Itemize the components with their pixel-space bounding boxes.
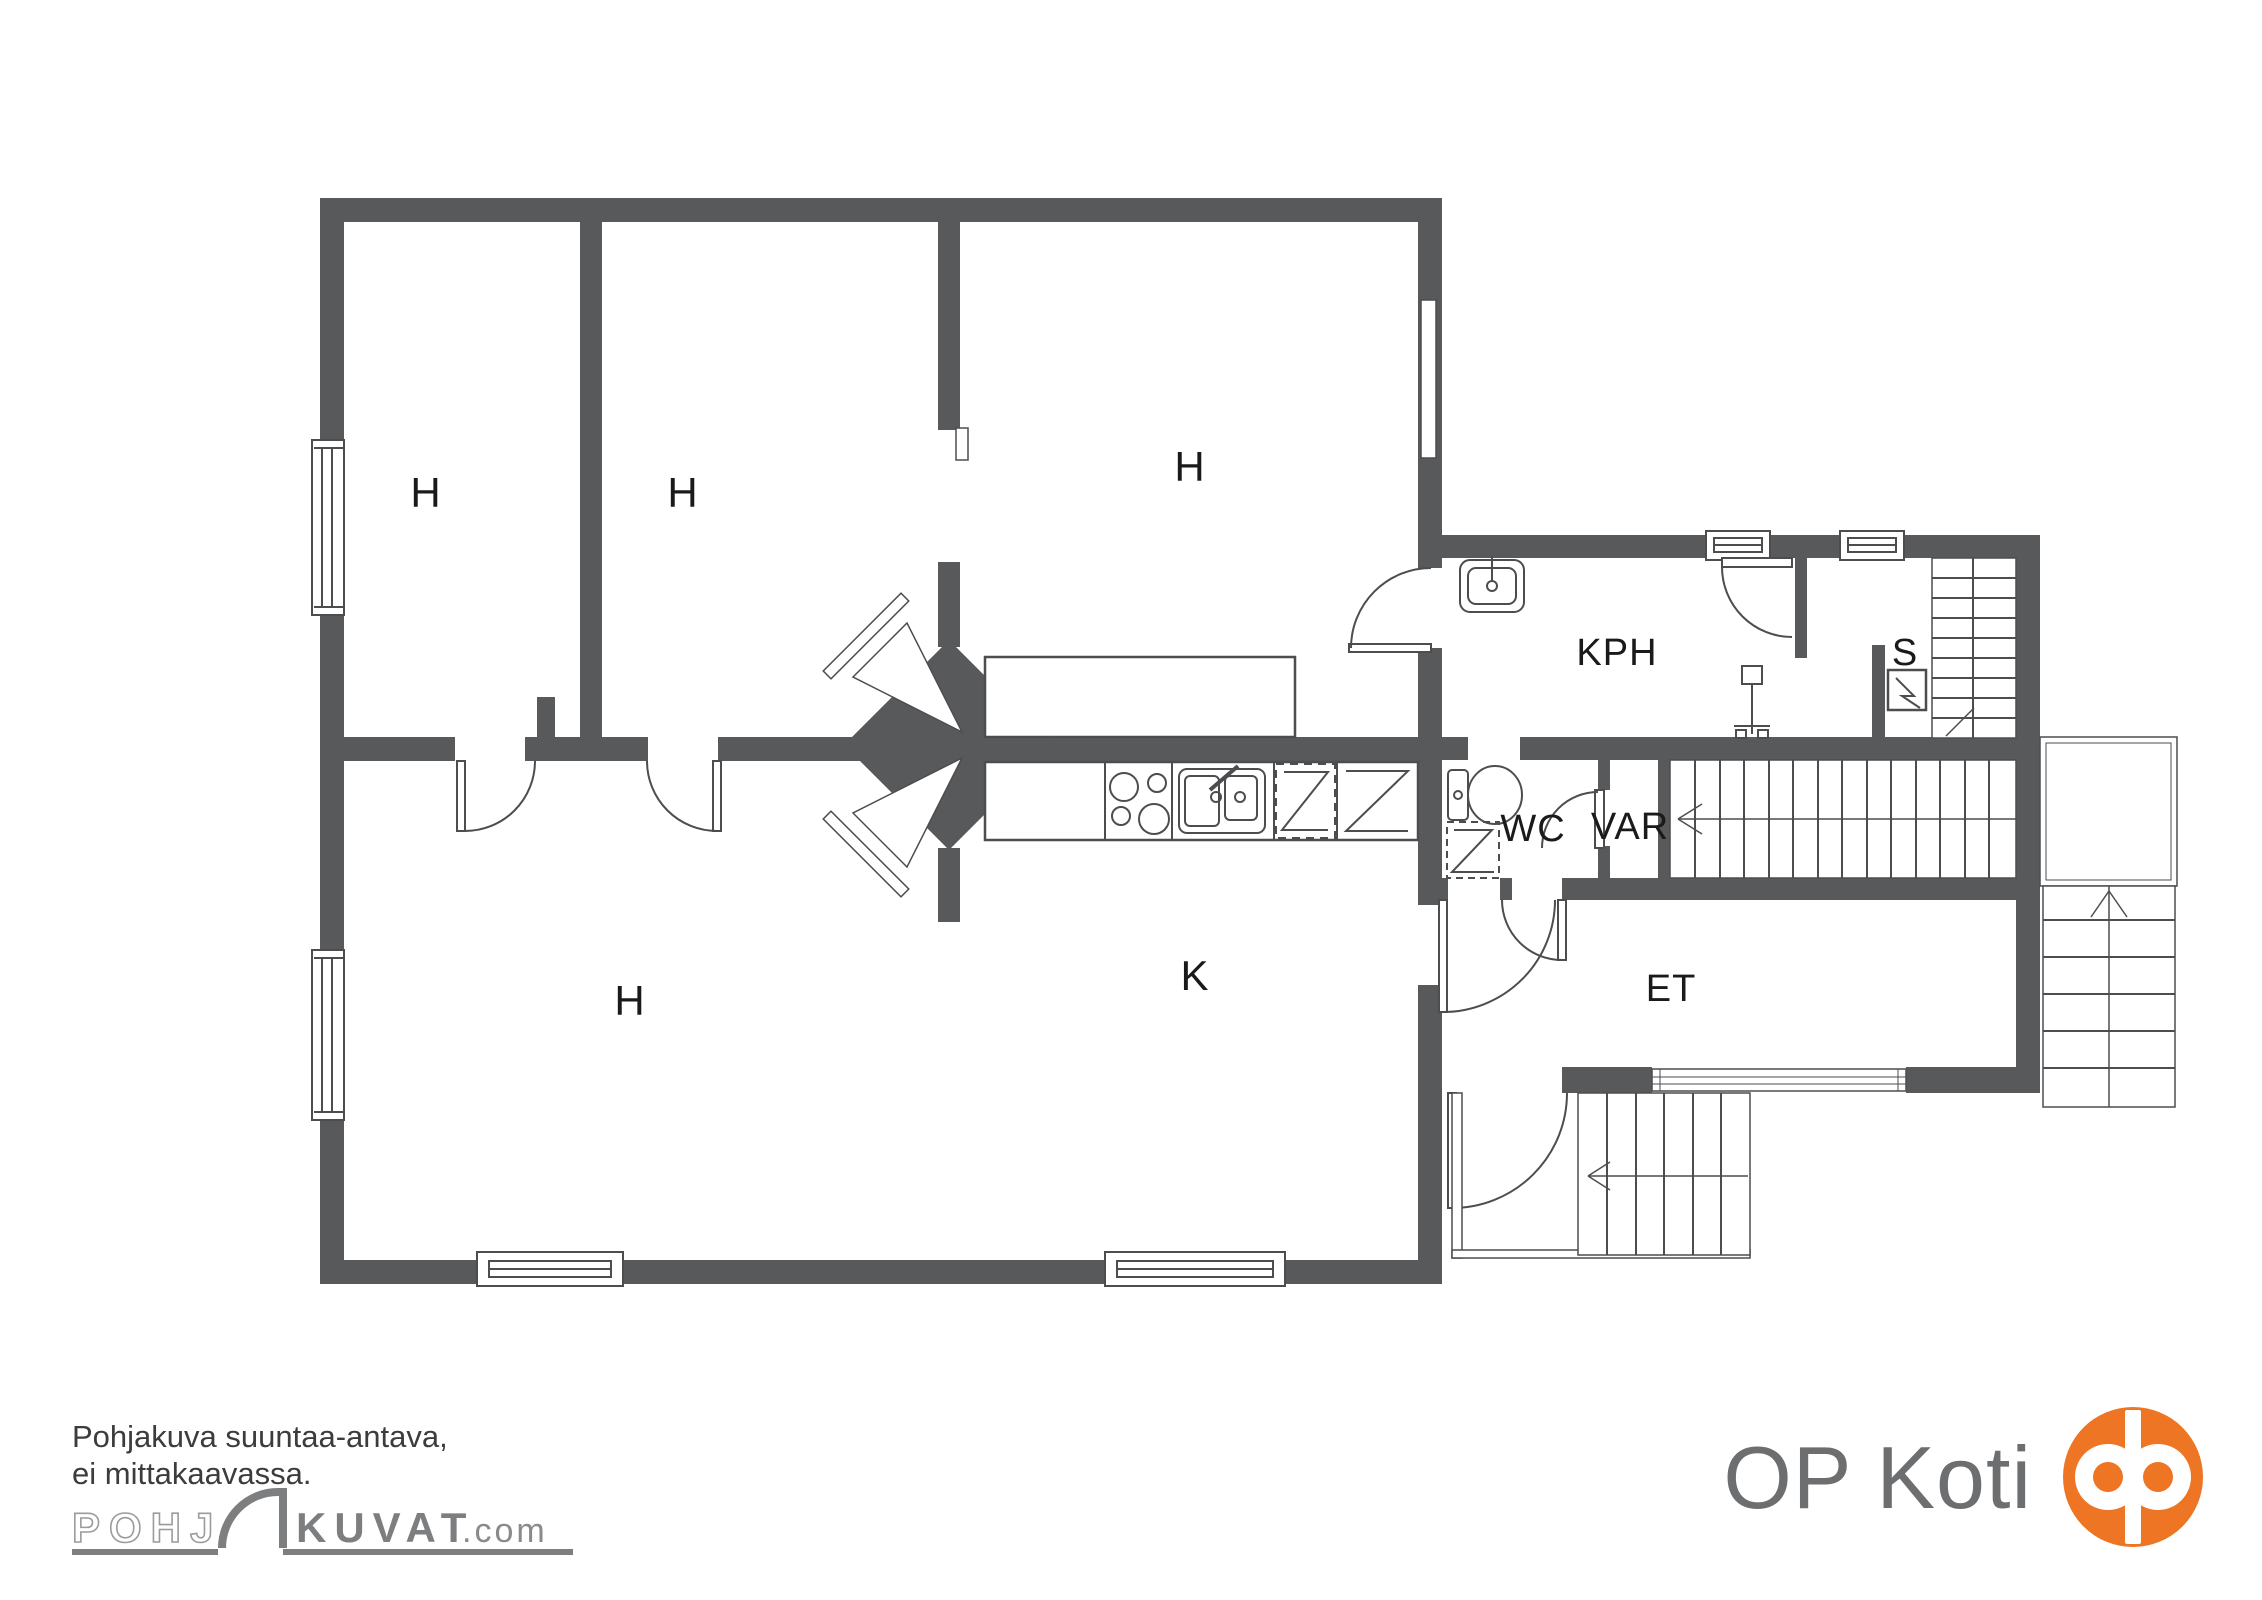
washing-machine-icon bbox=[1447, 822, 1499, 878]
wall-kph-bottom-seg bbox=[1520, 737, 2040, 760]
shower-mixer-icon bbox=[1734, 666, 1770, 738]
walls bbox=[320, 198, 2040, 1284]
wall-wc-var-seg bbox=[1598, 760, 1610, 790]
wall-right-seg bbox=[1418, 985, 1442, 1284]
wall-left-seg bbox=[320, 198, 344, 440]
window-icon bbox=[1105, 1252, 1285, 1286]
wall-left-seg bbox=[320, 615, 344, 950]
op-logo-icon bbox=[2063, 1407, 2203, 1547]
room-label-h3: H bbox=[1174, 443, 1205, 490]
door-arc-icon bbox=[222, 1492, 283, 1548]
door-swing-icon bbox=[1448, 1093, 1567, 1208]
wall-mid-stub bbox=[537, 697, 555, 739]
kitchen-counter-row bbox=[985, 762, 1418, 840]
floor-plan-page: H H H H K KPH S WC VAR ET Pohjakuva suun… bbox=[0, 0, 2262, 1600]
door-swing-icon bbox=[647, 761, 721, 831]
wall-sauna-stub bbox=[1872, 645, 1885, 737]
pohjakuvat-watermark: POHJ KUVAT .com bbox=[72, 1492, 573, 1555]
watermark-underline-right bbox=[283, 1549, 573, 1555]
wall-right-seg bbox=[1418, 648, 1442, 905]
glass-panel-icon bbox=[956, 300, 1436, 460]
room-label-h1: H bbox=[410, 469, 441, 516]
room-label-et: ET bbox=[1646, 968, 1697, 1010]
room-label-var: VAR bbox=[1591, 806, 1669, 848]
railing-icon bbox=[1652, 1069, 1906, 1091]
wall-et-bottom-seg bbox=[1562, 1067, 1652, 1093]
wall-et-top-seg bbox=[1442, 878, 1448, 900]
wall-top bbox=[320, 198, 1442, 222]
room-label-h4: H bbox=[614, 977, 645, 1024]
wall-mid-pier bbox=[525, 737, 648, 761]
room-label-wc: WC bbox=[1500, 808, 1565, 850]
door-swing-icon bbox=[1722, 558, 1792, 637]
landing-icon bbox=[2040, 737, 2177, 886]
window-icon bbox=[312, 440, 344, 615]
door-swing-icon bbox=[1502, 900, 1566, 960]
door-swing-icon bbox=[1349, 568, 1431, 652]
room-label-k: K bbox=[1180, 952, 1209, 999]
stairs-main-icon bbox=[1670, 760, 2016, 878]
sauna-stove-icon bbox=[1888, 670, 1926, 710]
watermark-underline-left bbox=[72, 1549, 218, 1555]
sink-icon bbox=[1460, 556, 1524, 612]
wall-kph-door-stub bbox=[1795, 558, 1807, 658]
room-label-s: S bbox=[1892, 632, 1918, 674]
wall-mid-seg bbox=[342, 737, 455, 761]
wall-partition-h2-h3-lower bbox=[938, 562, 960, 647]
wall-bottom-seg bbox=[623, 1260, 1105, 1284]
window-icon bbox=[1840, 531, 1904, 560]
wall-partition-h1-h2 bbox=[580, 220, 602, 737]
disclaimer-line1: Pohjakuva suuntaa-antava, bbox=[72, 1419, 448, 1454]
window-icon bbox=[477, 1252, 623, 1286]
floor-plan-canvas: H H H H K KPH S WC VAR ET Pohjakuva suun… bbox=[0, 0, 2262, 1600]
window-icon bbox=[1706, 531, 1770, 560]
wall-annex-top-seg bbox=[1442, 535, 1706, 558]
watermark-outline-text: POHJ bbox=[72, 1504, 222, 1551]
room-label-h2: H bbox=[667, 469, 698, 516]
wall-partition-h2-h3-upper bbox=[938, 220, 960, 430]
wall-left-seg bbox=[320, 1120, 344, 1284]
wall-et-top-seg bbox=[1562, 878, 2040, 900]
wall-chimney-stub bbox=[938, 848, 960, 922]
stairs-exterior-icon bbox=[2043, 886, 2175, 1107]
wall-annex-top-seg bbox=[1770, 535, 1840, 558]
room-label-kph: KPH bbox=[1576, 632, 1657, 674]
disclaimer-line2: ei mittakaavassa. bbox=[72, 1456, 312, 1491]
wall-kph-bottom-seg bbox=[1442, 737, 1468, 760]
footer: Pohjakuva suuntaa-antava, ei mittakaavas… bbox=[72, 1407, 2203, 1555]
door-swing-icon bbox=[457, 761, 535, 831]
watermark-suffix-text: .com bbox=[462, 1512, 548, 1550]
wall-annex-right bbox=[2016, 535, 2040, 1093]
stairs-porch-icon bbox=[1452, 1093, 1750, 1258]
window-icon bbox=[312, 950, 344, 1120]
closet-counter bbox=[985, 657, 1295, 737]
op-koti-text: OP Koti bbox=[1723, 1428, 2032, 1527]
wall-et-bottom-seg bbox=[1906, 1067, 2040, 1093]
op-koti-brand: OP Koti bbox=[1723, 1407, 2203, 1547]
wall-bottom-seg bbox=[320, 1260, 477, 1284]
watermark-solid-text: KUVAT bbox=[296, 1504, 474, 1551]
stairs-upper-icon bbox=[1932, 558, 2016, 738]
wall-et-top-seg bbox=[1500, 878, 1512, 900]
